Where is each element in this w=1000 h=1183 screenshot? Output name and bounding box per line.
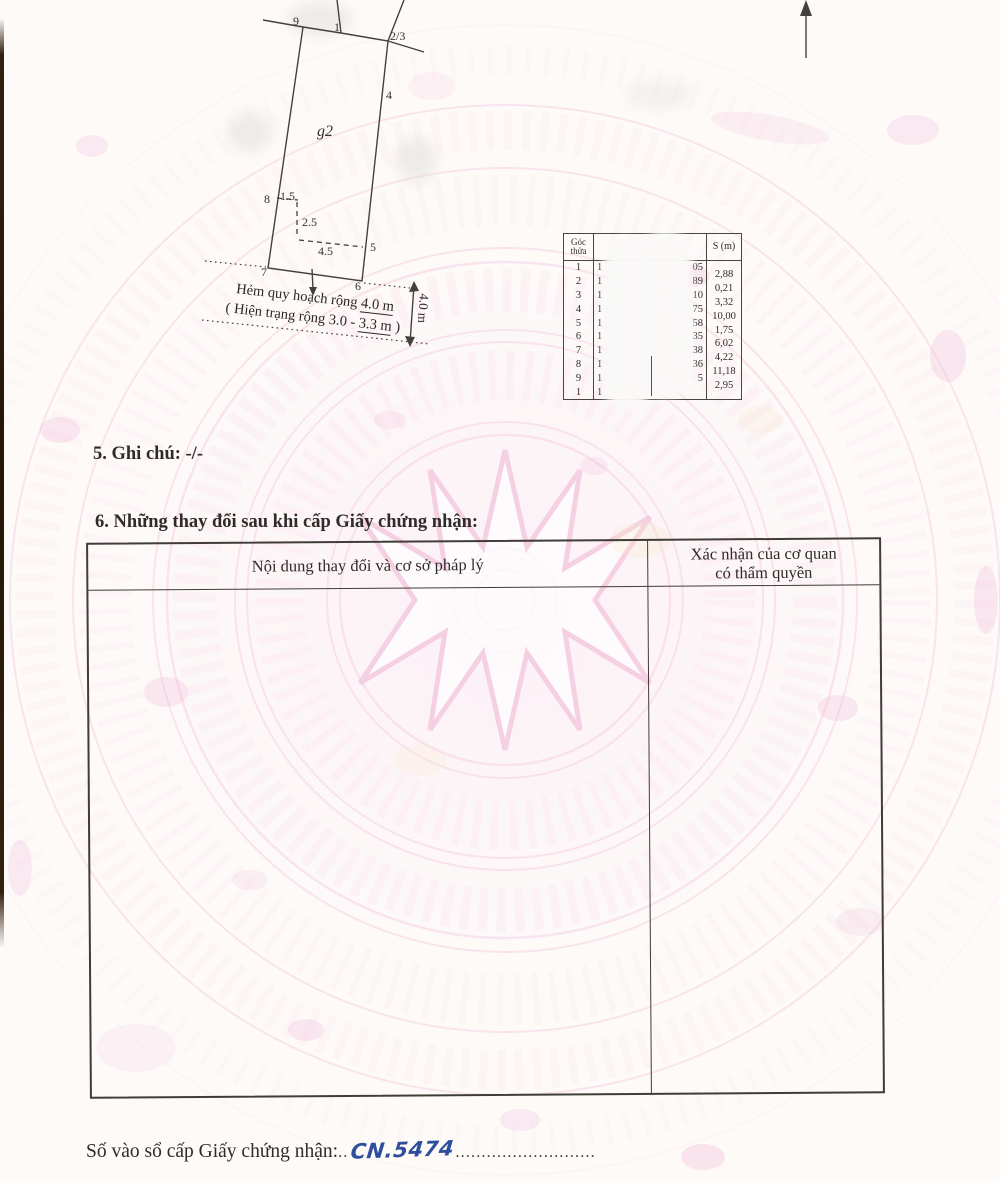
registration-number-line: Số vào sổ cấp Giấy chứng nhận: .. CN.547…: [86, 1138, 596, 1163]
registration-number-label: Số vào sổ cấp Giấy chứng nhận:: [86, 1141, 338, 1163]
changes-right-header-line1: Xác nhận của cơ quan: [691, 543, 837, 563]
corner-cell: 8: [564, 358, 593, 372]
corner-cell: 2: [564, 275, 593, 289]
s-value: 0,21: [707, 282, 741, 296]
scan-left-edge: [0, 18, 4, 948]
s-value: 4,22: [707, 351, 741, 365]
xy-fragment: 5: [698, 373, 703, 384]
s-values: 2,88 0,21 3,32 10,00 1,75 6,02 4,22 11,1…: [707, 261, 741, 399]
corner-header-line2: thửa: [571, 247, 587, 257]
coordinate-table-corner-column: Góc thửa 1 2 3 4 5 6 7 8 9 1: [564, 234, 594, 399]
vertex-label-6: 6: [355, 279, 361, 293]
xy-lead: 1: [597, 359, 602, 370]
xy-fragment: 75: [693, 304, 704, 315]
corner-cell: 7: [564, 344, 593, 358]
xy-fragment: 36: [693, 359, 704, 370]
coordinate-table-divider-stub: [651, 356, 652, 396]
vertex-label-9: 9: [293, 14, 299, 28]
changes-table-right-header: Xác nhận của cơ quan có thẩm quyền: [648, 539, 879, 587]
corner-cell: 1: [564, 261, 593, 275]
vertex-label-4: 4: [386, 88, 392, 102]
corner-cell: 6: [564, 330, 593, 344]
xy-fragment: 58: [693, 318, 704, 329]
vertex-label-1: 1: [334, 20, 340, 34]
xy-fragment: 38: [693, 345, 704, 356]
s-value: 1,75: [707, 324, 741, 338]
corner-cell: 5: [564, 316, 593, 330]
changes-right-header-line2: có thẩm quyền: [715, 562, 812, 582]
xy-lead: 1: [597, 304, 602, 315]
parcel-label: g2: [317, 123, 333, 140]
dim-label-4-5: 4.5: [318, 244, 333, 258]
certificate-page: 9 1 2/3 4 8 5 7 6 1.5 2.5 4.5 g2 Hẻm quy…: [0, 0, 1000, 1183]
dim-label-2-5: 2.5: [302, 215, 317, 229]
registration-number-handwritten: CN.5474: [349, 1136, 455, 1164]
coordinate-table-s-column: S (m) 2,88 0,21 3,32 10,00 1,75 6,02 4,2…: [706, 234, 741, 399]
north-arrow-head: [800, 0, 812, 16]
xy-lead: 1: [597, 373, 602, 384]
s-value: 2,88: [707, 268, 741, 282]
down-arrow-line: [312, 269, 313, 289]
s-value: 6,02: [707, 337, 741, 351]
xy-fragment: 05: [693, 262, 704, 273]
changes-table-left-body: [88, 587, 652, 1097]
vertex-label-5: 5: [370, 240, 376, 254]
s-value: 10,00: [707, 310, 741, 324]
corner-cells: 1 2 3 4 5 6 7 8 9 1: [564, 261, 593, 399]
vertex-label-23: 2/3: [390, 29, 405, 43]
xy-lead: 1: [597, 276, 602, 287]
s-value: 3,32: [707, 296, 741, 310]
xy-lead: 1: [597, 345, 602, 356]
leader-dots-post: ...........................: [455, 1144, 595, 1162]
xy-fragment: 10: [693, 290, 704, 301]
road-note-line2-dim: 3.3 m: [358, 315, 393, 336]
dim-label-1-5: 1.5: [280, 189, 295, 203]
corner-cell: 3: [564, 289, 593, 303]
road-width-arrow-label: 4.0 m: [414, 293, 432, 324]
corner-cell: 9: [564, 371, 593, 385]
xy-fragment: 89: [693, 276, 704, 287]
section5-note: 5. Ghi chú: -/-: [93, 444, 203, 465]
xy-lead: 1: [597, 331, 602, 342]
s-header: S (m): [707, 234, 741, 261]
changes-table-left-header: Nội dung thay đổi và cơ sở pháp lý: [88, 541, 648, 591]
changes-table: Nội dung thay đổi và cơ sở pháp lý Xác n…: [86, 537, 885, 1099]
road-note-line2-close: ): [391, 319, 401, 336]
redaction-blur: [638, 231, 692, 397]
road-width-arrow-head-top: [409, 281, 419, 292]
s-value: 11,18: [707, 365, 741, 379]
xy-lead: 1: [597, 318, 602, 329]
corner-cell: 1: [564, 385, 593, 399]
s-value: 2,95: [707, 379, 741, 393]
leader-dots-pre: ..: [338, 1144, 348, 1162]
vertex-label-8: 8: [264, 192, 270, 206]
section6-title: 6. Những thay đổi sau khi cấp Giấy chứng…: [95, 512, 478, 533]
xy-fragment: 35: [693, 331, 704, 342]
xy-lead: 1: [597, 387, 602, 398]
xy-lead: 1: [597, 262, 602, 273]
changes-left-header-text: Nội dung thay đổi và cơ sở pháp lý: [252, 555, 484, 576]
setback-dashed-lines: [277, 198, 363, 247]
corner-cell: 4: [564, 302, 593, 316]
xy-lead: 1: [597, 290, 602, 301]
vertex-label-7: 7: [261, 265, 267, 279]
corner-header: Góc thửa: [564, 234, 593, 261]
changes-table-right-body: [648, 585, 883, 1093]
